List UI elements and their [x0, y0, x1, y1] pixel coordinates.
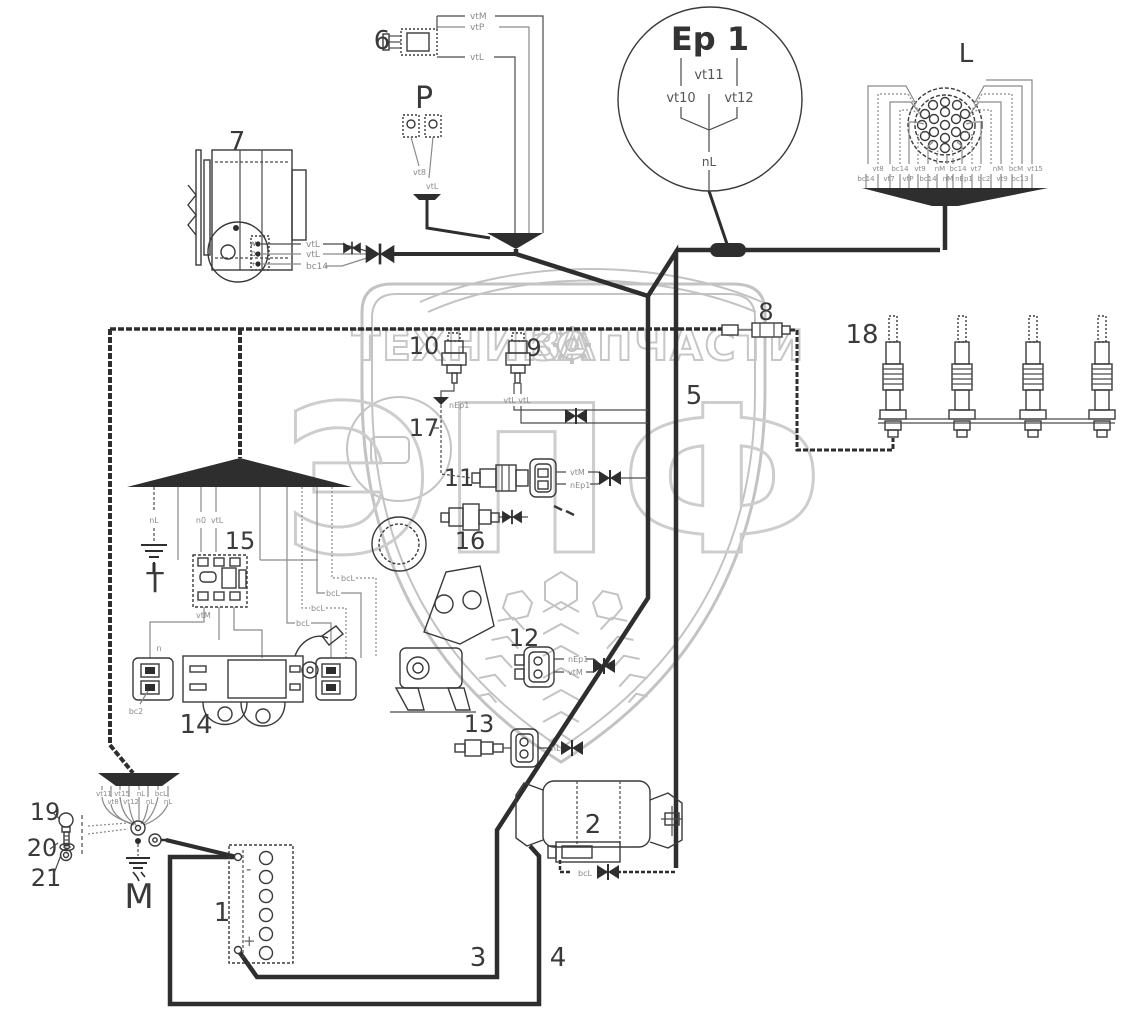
ep1-title: Ep 1	[671, 20, 749, 58]
wire-label: nL	[137, 790, 145, 798]
hardware-19-20-21: 19 20 21	[27, 798, 128, 892]
ep1-nL: nL	[702, 155, 717, 169]
wire-label: bcL	[296, 619, 310, 628]
watermark-logo-text: ЭПФ	[282, 363, 831, 601]
callout-L: L	[959, 39, 974, 69]
terminal-D: D	[251, 250, 256, 258]
wire-label: bcL	[155, 790, 167, 798]
callout-7: 7	[229, 127, 246, 157]
wire-label: nEp1	[955, 175, 973, 183]
wire-label: vtL	[426, 182, 439, 191]
wire-label: bc14	[891, 165, 909, 173]
wire-label: nEp1	[568, 655, 588, 664]
wire-label: bcL	[578, 869, 592, 878]
ground-M: M	[124, 858, 153, 917]
wire-label: nEp1	[449, 401, 469, 410]
wire-label: bc13	[1011, 175, 1028, 183]
wire-label: bcM	[1009, 165, 1023, 173]
callout-2: 2	[585, 810, 602, 840]
inline-connector	[710, 243, 746, 257]
wire-label: vtL	[306, 240, 320, 250]
wire-label: bcL	[326, 589, 340, 598]
wire-label: n0	[196, 516, 206, 525]
wire-label: vt11	[96, 790, 112, 798]
wire-label: bc2	[978, 175, 991, 183]
wire-17: 17	[409, 414, 440, 442]
ground-T: T	[141, 545, 167, 599]
wire-label: vt12	[123, 798, 139, 806]
wire-label: vtL	[470, 53, 484, 63]
wire-label: vtL	[306, 250, 320, 260]
callout-P: P	[415, 81, 433, 116]
callout-4: 4	[550, 943, 567, 973]
battery-1: 1 - +	[214, 845, 293, 963]
wire-label: vt9	[914, 165, 925, 173]
wire-label: vtP	[470, 23, 485, 33]
connector-14-left: n bc2	[129, 644, 173, 716]
regulator-connector: W D + vtL vtL bc14	[208, 222, 394, 282]
ep1-vt10: vt10	[666, 91, 695, 106]
wire-label: vtP	[902, 175, 913, 183]
wire-label: vtL	[211, 516, 224, 525]
callout-9: 9	[526, 334, 541, 362]
relay-15: 15 vtM	[150, 527, 262, 658]
connector-6: 6 vtM vtP vtL	[374, 12, 543, 233]
callout-16: 16	[455, 527, 486, 555]
ep1-vt11: vt11	[694, 68, 723, 83]
ep1-detail: Ep 1 vt11 vt10 vt12 nL	[618, 7, 802, 191]
glow-plugs-18: 18	[845, 316, 1115, 437]
callout-1: 1	[214, 898, 231, 928]
wire-label: bc14	[949, 165, 967, 173]
wire-label: vt8	[872, 165, 883, 173]
wire-label: n	[156, 644, 161, 653]
callout-18: 18	[845, 320, 878, 350]
wire-label: vtL vtL	[503, 396, 531, 405]
relay-block-14: 14 n bc2	[129, 626, 356, 740]
callout-15: 15	[225, 527, 256, 555]
callout-21: 21	[31, 864, 62, 892]
wire-label: bc14	[306, 262, 328, 272]
wire-label: vtM	[568, 668, 583, 677]
wire-label: vt8	[107, 798, 118, 806]
connector-12: 12 nEp1 vtM	[509, 624, 615, 687]
terminal-plus: +	[251, 260, 256, 268]
wire-label: vtM	[196, 611, 211, 620]
callout-14: 14	[179, 710, 212, 740]
wire-label: vt15	[114, 790, 130, 798]
battery-neg-label: -	[246, 860, 251, 878]
callout-T: T	[145, 566, 164, 599]
callout-12: 12	[509, 624, 540, 652]
wire-label: nL	[146, 798, 154, 806]
callout-5: 5	[686, 381, 703, 411]
wire-label: bc2	[129, 707, 144, 716]
wire-label: bc14	[919, 175, 937, 183]
callout-13: 13	[464, 710, 495, 738]
callout-6: 6	[374, 26, 391, 56]
wire-label: nM	[943, 175, 953, 183]
wire-label: vtM	[470, 12, 487, 22]
callout-11: 11	[444, 464, 475, 492]
terminal-W: W	[250, 240, 257, 248]
callout-19: 19	[30, 798, 61, 826]
wire-label: nL	[164, 798, 172, 806]
alternator-7: 7	[188, 127, 306, 270]
wire-label: nL	[149, 516, 159, 525]
callout-3: 3	[470, 943, 487, 973]
wire-label: nEp1	[570, 481, 590, 490]
wire-label: bcL	[311, 604, 325, 613]
callout-10: 10	[409, 332, 440, 360]
wire-label: vt9	[996, 175, 1007, 183]
ep1-vt12: vt12	[724, 91, 753, 106]
callout-20: 20	[27, 834, 58, 862]
connector-L: L vt8 bc14 vt9 nM bc14 vt7	[857, 39, 1043, 188]
wiring-diagram-page: ТЕХНИКА ЗАПЧАСТИ ЭПФ	[0, 0, 1127, 1019]
callout-8: 8	[758, 298, 773, 326]
wiring-diagram: ТЕХНИКА ЗАПЧАСТИ ЭПФ	[0, 0, 1127, 1019]
callout-M: M	[124, 877, 153, 917]
connector-L-wire-labels: vt8 bc14 vt9 nM bc14 vt7 nM bcM vt15 bc1…	[857, 165, 1043, 183]
wire-label: vt8	[413, 168, 426, 177]
wire-label: nM	[993, 165, 1003, 173]
wire-label: bc14	[857, 175, 875, 183]
wire-label: bcL	[341, 574, 355, 583]
wire-label: vtM	[570, 468, 585, 477]
engine-watermark: ТЕХНИКА ЗАПЧАСТИ ЭПФ	[282, 269, 831, 762]
connector-14-right	[316, 658, 356, 700]
component-P: P vt8 vtL	[403, 81, 490, 238]
wire-label: nM	[935, 165, 945, 173]
battery-pos-label: +	[243, 932, 256, 950]
wire-label: nL	[551, 744, 561, 753]
wire-label: vt7	[883, 175, 894, 183]
wire-label: vt15	[1027, 165, 1043, 173]
wire-label: vt7	[970, 165, 981, 173]
bottom-left-fanout: vt11 vt15 nL bcL vt8 vt12 nL nL M 19 20 …	[27, 786, 173, 917]
